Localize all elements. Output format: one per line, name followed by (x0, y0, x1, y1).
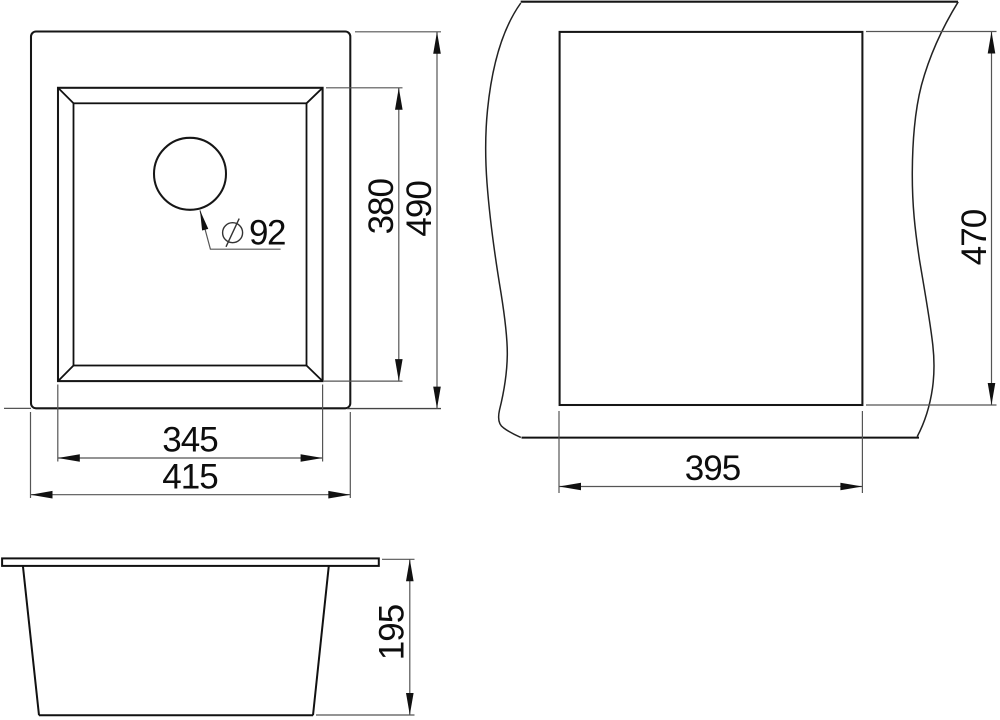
svg-text:395: 395 (685, 449, 740, 488)
svg-text:490: 490 (400, 181, 439, 237)
svg-text:92: 92 (249, 213, 285, 252)
svg-text:345: 345 (162, 421, 217, 460)
svg-text:470: 470 (955, 209, 994, 265)
svg-text:380: 380 (362, 178, 401, 234)
svg-text:195: 195 (373, 605, 412, 660)
svg-text:415: 415 (162, 458, 217, 497)
